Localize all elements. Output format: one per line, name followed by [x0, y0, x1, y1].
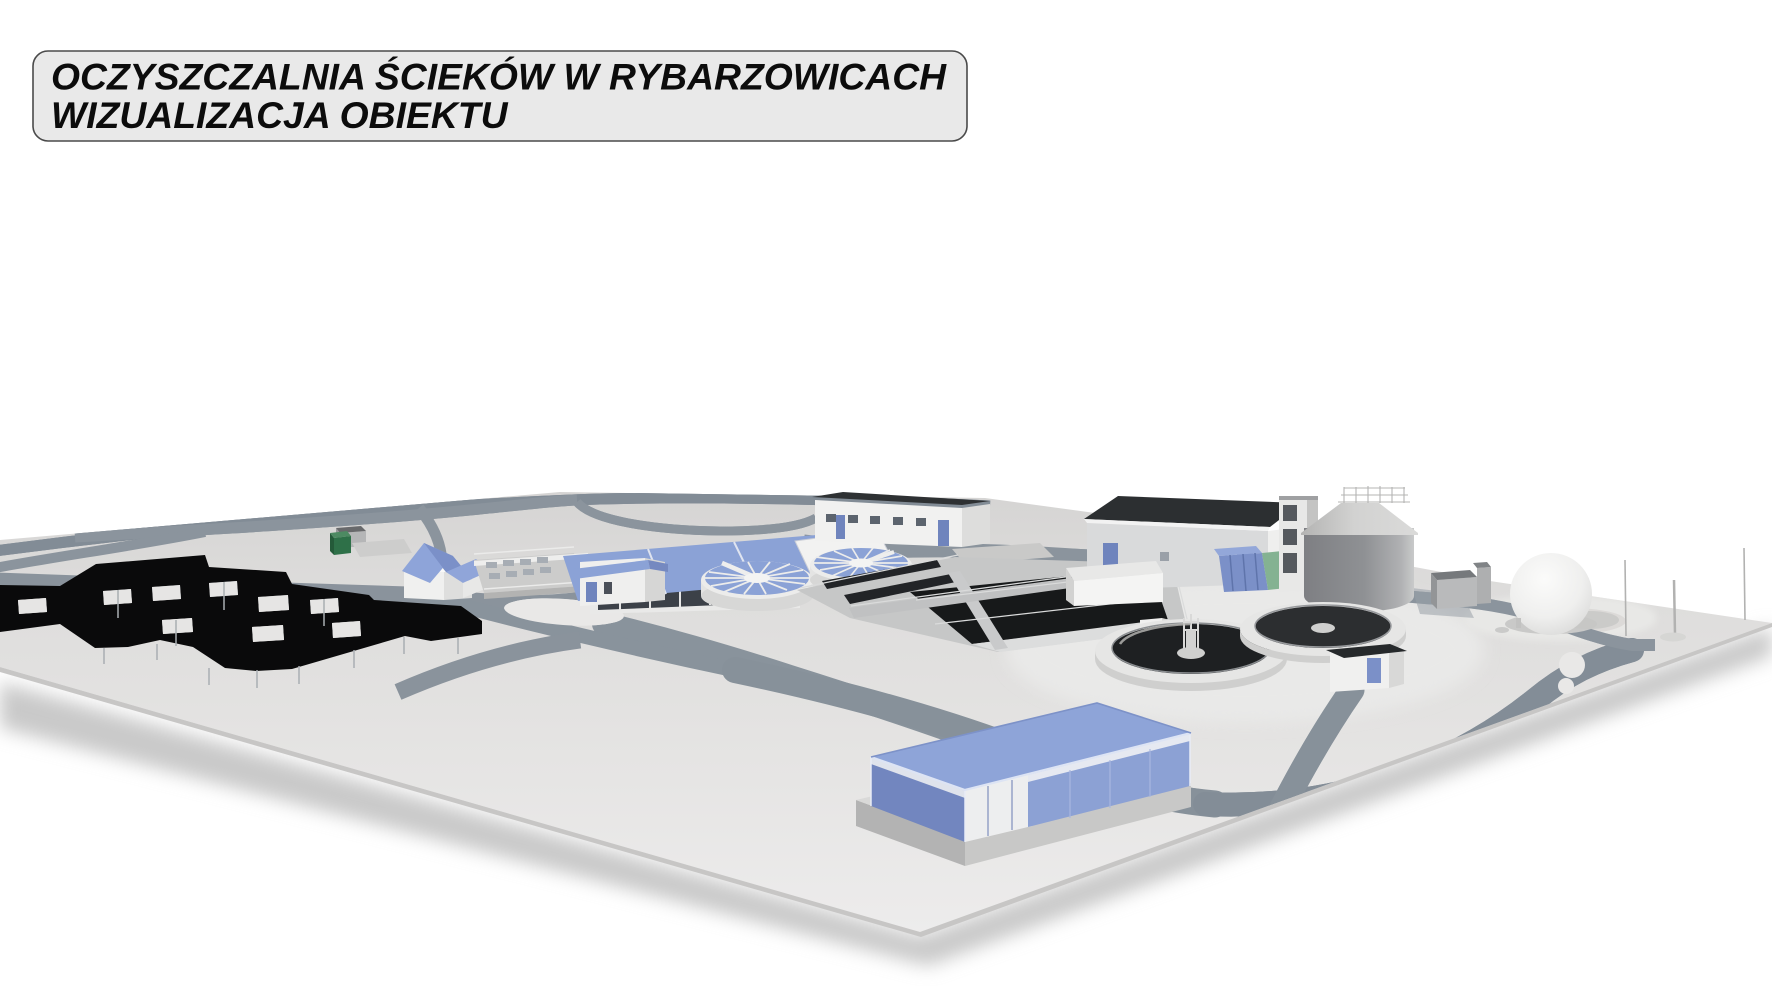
svg-text:WIZUALIZACJA OBIEKTU: WIZUALIZACJA OBIEKTU: [51, 94, 509, 136]
svg-text:OCZYSZCZALNIA ŚCIEKÓW W RYBARZ: OCZYSZCZALNIA ŚCIEKÓW W RYBARZOWICACH: [51, 56, 947, 98]
